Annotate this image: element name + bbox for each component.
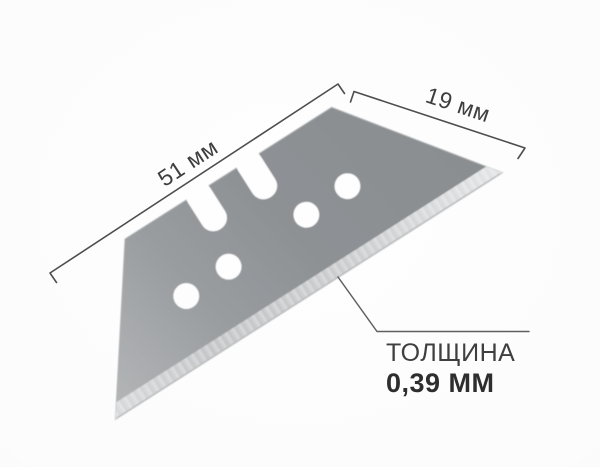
thickness-title: ТОЛЩИНА (386, 341, 515, 366)
product-image: 51 мм 19 мм ТОЛЩИНА 0,39 ММ (0, 0, 600, 467)
thickness-leader-line (338, 277, 529, 332)
thickness-callout: ТОЛЩИНА 0,39 ММ (386, 341, 515, 397)
thickness-value: 0,39 ММ (386, 370, 515, 397)
